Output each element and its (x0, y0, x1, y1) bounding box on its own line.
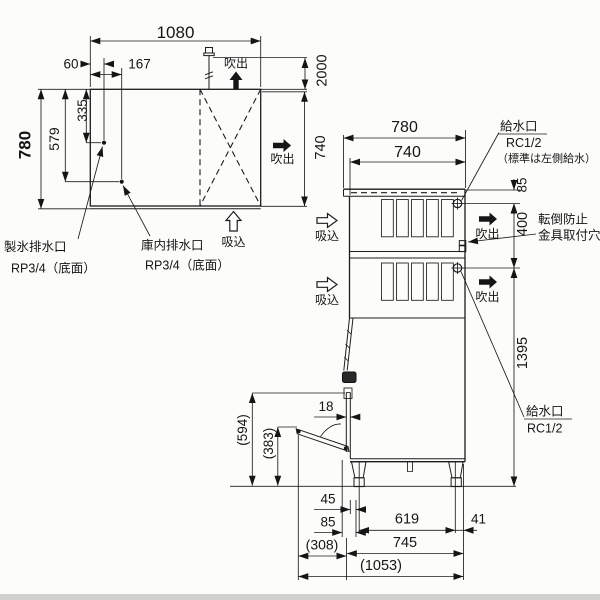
blowout-label-lower: 吹出 (475, 290, 499, 304)
plan-dimension-lines (41, 41, 305, 209)
blowout-label-plan-right: 吹出 (270, 152, 294, 166)
side-view: 吸込 吸込 吹出 吹出 (230, 119, 600, 580)
blowout-up-arrow-icon (230, 72, 243, 90)
intake-label-plan: 吸込 (221, 235, 245, 249)
scan-edge (0, 594, 600, 600)
inlet-top-note: （標準は左側給水） (497, 151, 596, 165)
dim-plan-depth: 780 (16, 131, 35, 159)
side-body (350, 189, 466, 462)
bin-drain-point (120, 180, 124, 184)
intake-label-lower: 吸込 (315, 293, 339, 307)
dim-side-depth-total: 780 (391, 119, 418, 136)
dim-unit-depth: 740 (313, 135, 329, 159)
inlet-bottom-spec: RC1/2 (527, 422, 562, 436)
bin-front (343, 318, 357, 459)
dim-drain1-x: 60 (63, 57, 78, 72)
dim-front-offset: 85 (320, 515, 335, 530)
dim-anchor-height: 2000 (315, 54, 331, 86)
tipover-label-1: 転倒防止 (538, 212, 588, 227)
plan-view: 1080 60 167 780 579 335 2000 740 吹出 吹出 吸… (4, 23, 331, 276)
dim-door-top-height: (594) (235, 414, 250, 446)
door-swing-arc (321, 424, 342, 437)
plan-fan-region (200, 89, 261, 206)
intake-arrow-icon-lower (317, 278, 337, 292)
dim-inlet-spacing: 400 (515, 212, 531, 236)
dim-plan-width: 1080 (157, 23, 195, 42)
blowout-right-arrow-icon-plan (273, 139, 291, 152)
plan-outline (90, 89, 260, 206)
door-handle (343, 372, 357, 383)
inlet-bottom-label: 給水口 (526, 405, 564, 419)
dim-drain2-y: 579 (46, 127, 62, 151)
dim-leg-pitch: 619 (395, 512, 419, 528)
dim-side-depth-body: 740 (394, 144, 421, 161)
ice-drain-label: 製氷排水口 (4, 240, 67, 254)
bin-drain-label: 庫内排水口 (141, 239, 204, 253)
drain-stub (408, 462, 413, 472)
condenser-grille-upper (382, 200, 454, 237)
inlet-top-label: 給水口 (500, 120, 538, 134)
tipover-label-2: 金具取付穴 (538, 228, 600, 243)
dim-total-depth: (1053) (360, 558, 402, 574)
ice-drain-point (102, 141, 106, 145)
dim-inlet-height: 1395 (515, 337, 531, 369)
anchor-bolt-icon (204, 48, 214, 90)
dim-rear-offset: 41 (471, 512, 486, 527)
bin-door-open (296, 424, 349, 452)
blowout-label-top: 吹出 (224, 57, 248, 71)
intake-label-upper: 吸込 (315, 229, 339, 243)
legs (352, 462, 464, 487)
dim-door-thickness: 18 (318, 399, 333, 414)
bin-drain-leader (123, 186, 150, 237)
blowout-arrow-icon-lower (479, 276, 497, 289)
inlet-top-spec: RC1/2 (506, 136, 541, 150)
dim-drain1-y: 335 (75, 99, 90, 122)
technical-drawing: 1080 60 167 780 579 335 2000 740 吹出 吹出 吸… (0, 0, 600, 600)
blowout-arrow-icon-upper (479, 213, 497, 226)
condenser-grille-lower (382, 263, 454, 300)
dim-base-depth: 745 (393, 535, 417, 551)
dim-inlet-drop: 85 (515, 177, 530, 192)
drawing-page: 1080 60 167 780 579 335 2000 740 吹出 吹出 吸… (0, 0, 600, 600)
dim-leg-offset: 45 (320, 492, 335, 507)
intake-up-arrow-icon (226, 212, 241, 232)
dim-door-open-height: (383) (261, 428, 276, 460)
ice-drain-spec: RP3/4（底面） (11, 261, 96, 276)
dim-door-projection: (308) (306, 537, 339, 553)
intake-arrow-icon-upper (317, 214, 337, 228)
bin-drain-spec: RP3/4（底面） (145, 258, 230, 273)
side-top-panel (344, 189, 466, 196)
dim-drain2-x: 167 (128, 57, 151, 72)
